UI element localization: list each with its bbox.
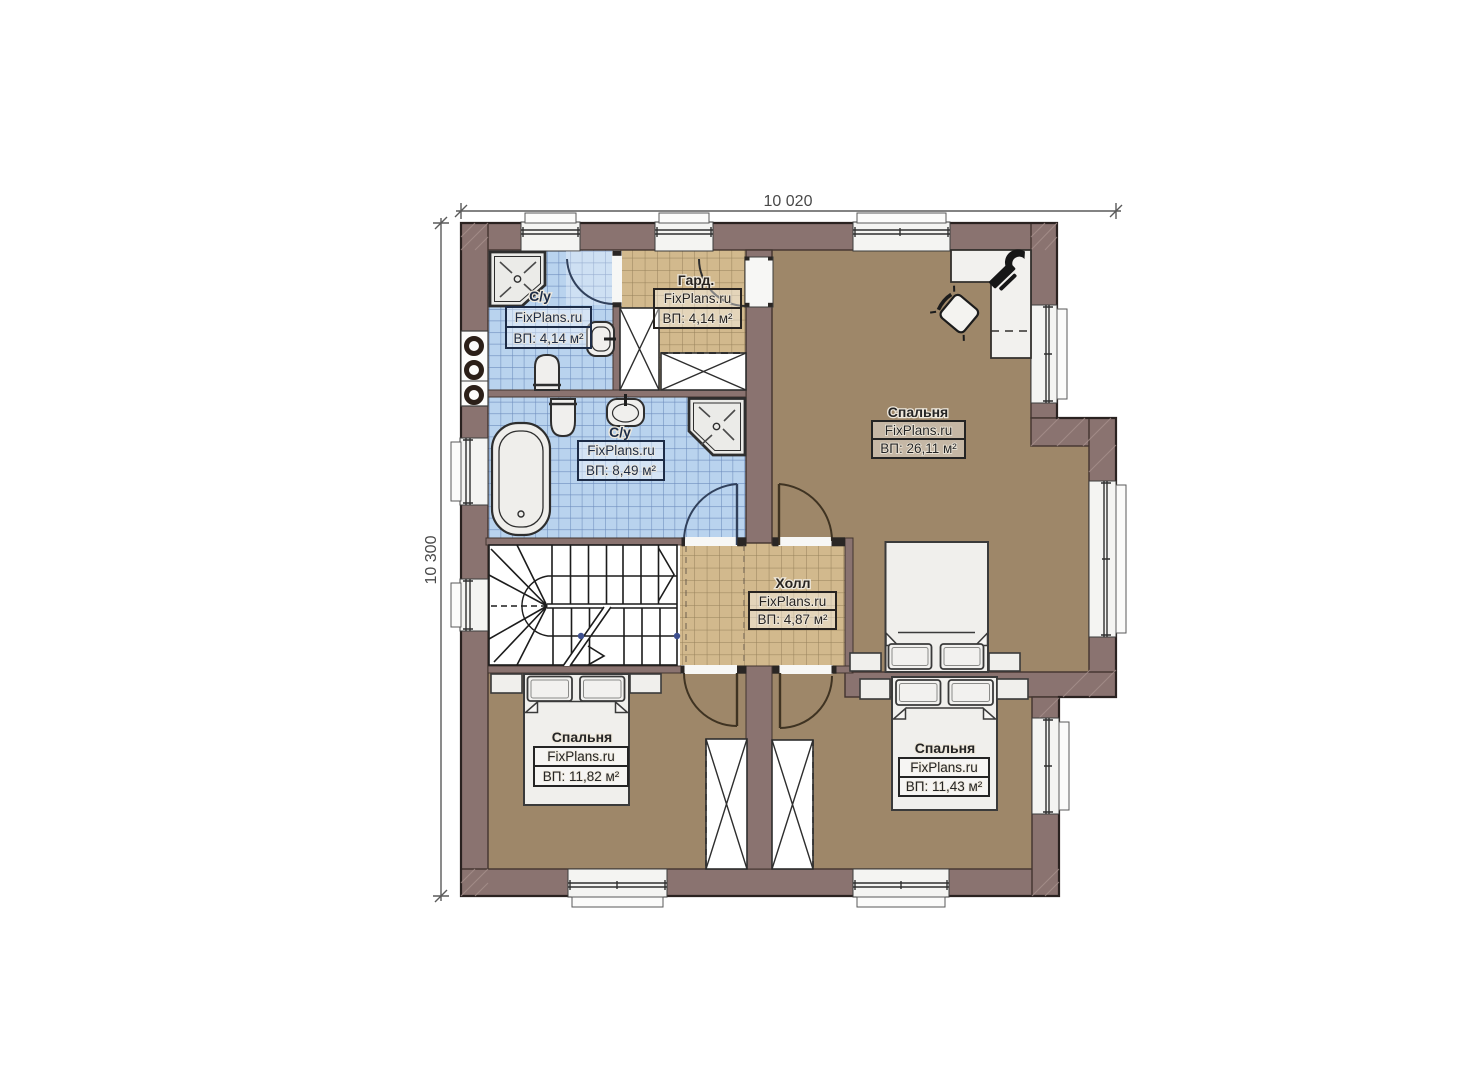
svg-text:Холл: Холл	[775, 575, 810, 591]
svg-text:FixPlans.ru: FixPlans.ru	[885, 423, 953, 438]
svg-text:ВП: 4,87 м²: ВП: 4,87 м²	[757, 612, 828, 627]
svg-text:10 020: 10 020	[764, 193, 813, 210]
svg-text:FixPlans.ru: FixPlans.ru	[759, 594, 827, 609]
svg-text:Гард.: Гард.	[678, 272, 715, 288]
svg-text:ВП: 26,11 м²: ВП: 26,11 м²	[880, 441, 957, 456]
svg-text:Спальня: Спальня	[915, 740, 975, 756]
svg-text:С/у: С/у	[529, 288, 551, 304]
svg-text:ВП: 8,49 м²: ВП: 8,49 м²	[586, 463, 657, 478]
svg-text:FixPlans.ru: FixPlans.ru	[910, 760, 978, 775]
svg-text:FixPlans.ru: FixPlans.ru	[587, 443, 655, 458]
svg-text:FixPlans.ru: FixPlans.ru	[664, 291, 732, 306]
svg-text:Спальня: Спальня	[552, 729, 612, 745]
svg-text:ВП: 4,14 м²: ВП: 4,14 м²	[662, 311, 733, 326]
svg-text:FixPlans.ru: FixPlans.ru	[547, 749, 615, 764]
svg-text:ВП: 11,82 м²: ВП: 11,82 м²	[543, 769, 620, 784]
svg-text:10 300: 10 300	[423, 535, 440, 584]
svg-text:Спальня: Спальня	[888, 404, 948, 420]
svg-text:ВП: 11,43 м²: ВП: 11,43 м²	[906, 779, 983, 794]
svg-text:ВП: 4,14 м²: ВП: 4,14 м²	[513, 331, 584, 346]
svg-text:С/у: С/у	[609, 424, 631, 440]
svg-text:FixPlans.ru: FixPlans.ru	[515, 310, 583, 325]
